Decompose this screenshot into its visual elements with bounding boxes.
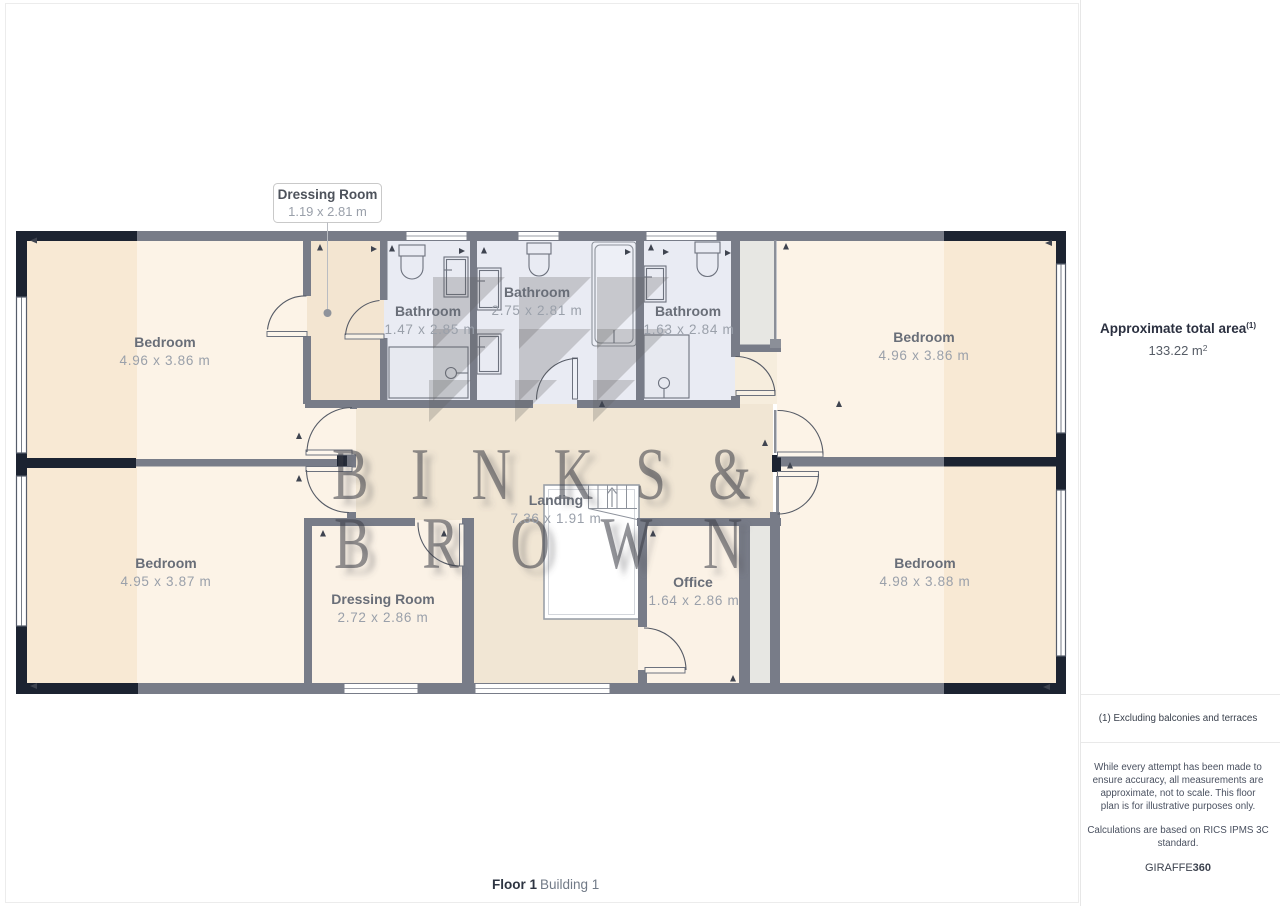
svg-text:ensure accuracy, all measureme: ensure accuracy, all measurements are [1093, 775, 1264, 786]
svg-text:Office: Office [673, 574, 713, 590]
svg-text:Bedroom: Bedroom [893, 329, 954, 345]
svg-text:Approximate total area(1): Approximate total area(1) [1100, 321, 1256, 336]
svg-text:Bedroom: Bedroom [135, 555, 196, 571]
svg-text:Bathroom: Bathroom [504, 284, 570, 300]
svg-text:Floor 1: Floor 1 [492, 877, 537, 892]
svg-text:4.98 x 3.88 m: 4.98 x 3.88 m [880, 574, 971, 589]
svg-text:(1) Excluding balconies and te: (1) Excluding balconies and terraces [1099, 713, 1258, 724]
svg-text:2.75 x 2.81 m: 2.75 x 2.81 m [492, 303, 583, 318]
svg-text:Bedroom: Bedroom [134, 334, 195, 350]
svg-text:2.72 x 2.86 m: 2.72 x 2.86 m [338, 610, 429, 625]
svg-text:Calculations are based on RICS: Calculations are based on RICS IPMS 3C [1087, 825, 1268, 836]
svg-text:Bathroom: Bathroom [395, 303, 461, 319]
svg-text:standard.: standard. [1158, 838, 1199, 849]
svg-text:plan is for illustrative purpo: plan is for illustrative purposes only. [1101, 801, 1255, 812]
svg-text:Bathroom: Bathroom [655, 303, 721, 319]
svg-text:GIRAFFE360: GIRAFFE360 [1145, 862, 1211, 874]
svg-text:Dressing Room: Dressing Room [331, 591, 434, 607]
svg-text:Bedroom: Bedroom [894, 555, 955, 571]
svg-text:Landing: Landing [529, 492, 583, 508]
svg-text:4.96 x 3.86 m: 4.96 x 3.86 m [879, 348, 970, 363]
svg-text:1.19 x 2.81 m: 1.19 x 2.81 m [288, 204, 367, 219]
svg-text:Building 1: Building 1 [540, 877, 599, 892]
svg-text:4.96 x 3.86 m: 4.96 x 3.86 m [120, 353, 211, 368]
svg-text:approximate, not to scale. Thi: approximate, not to scale. This floor [1100, 788, 1256, 799]
svg-text:133.22 m2: 133.22 m2 [1149, 343, 1208, 358]
svg-text:1.63 x 2.84 m: 1.63 x 2.84 m [644, 322, 735, 337]
svg-text:4.95 x 3.87 m: 4.95 x 3.87 m [121, 574, 212, 589]
svg-text:1.64 x 2.86 m: 1.64 x 2.86 m [649, 593, 740, 608]
svg-text:Dressing Room: Dressing Room [278, 187, 378, 202]
svg-text:7.36 x 1.91 m: 7.36 x 1.91 m [511, 511, 602, 526]
svg-text:1.47 x 2.85 m: 1.47 x 2.85 m [385, 322, 476, 337]
svg-text:While every attempt has been m: While every attempt has been made to [1094, 762, 1262, 773]
